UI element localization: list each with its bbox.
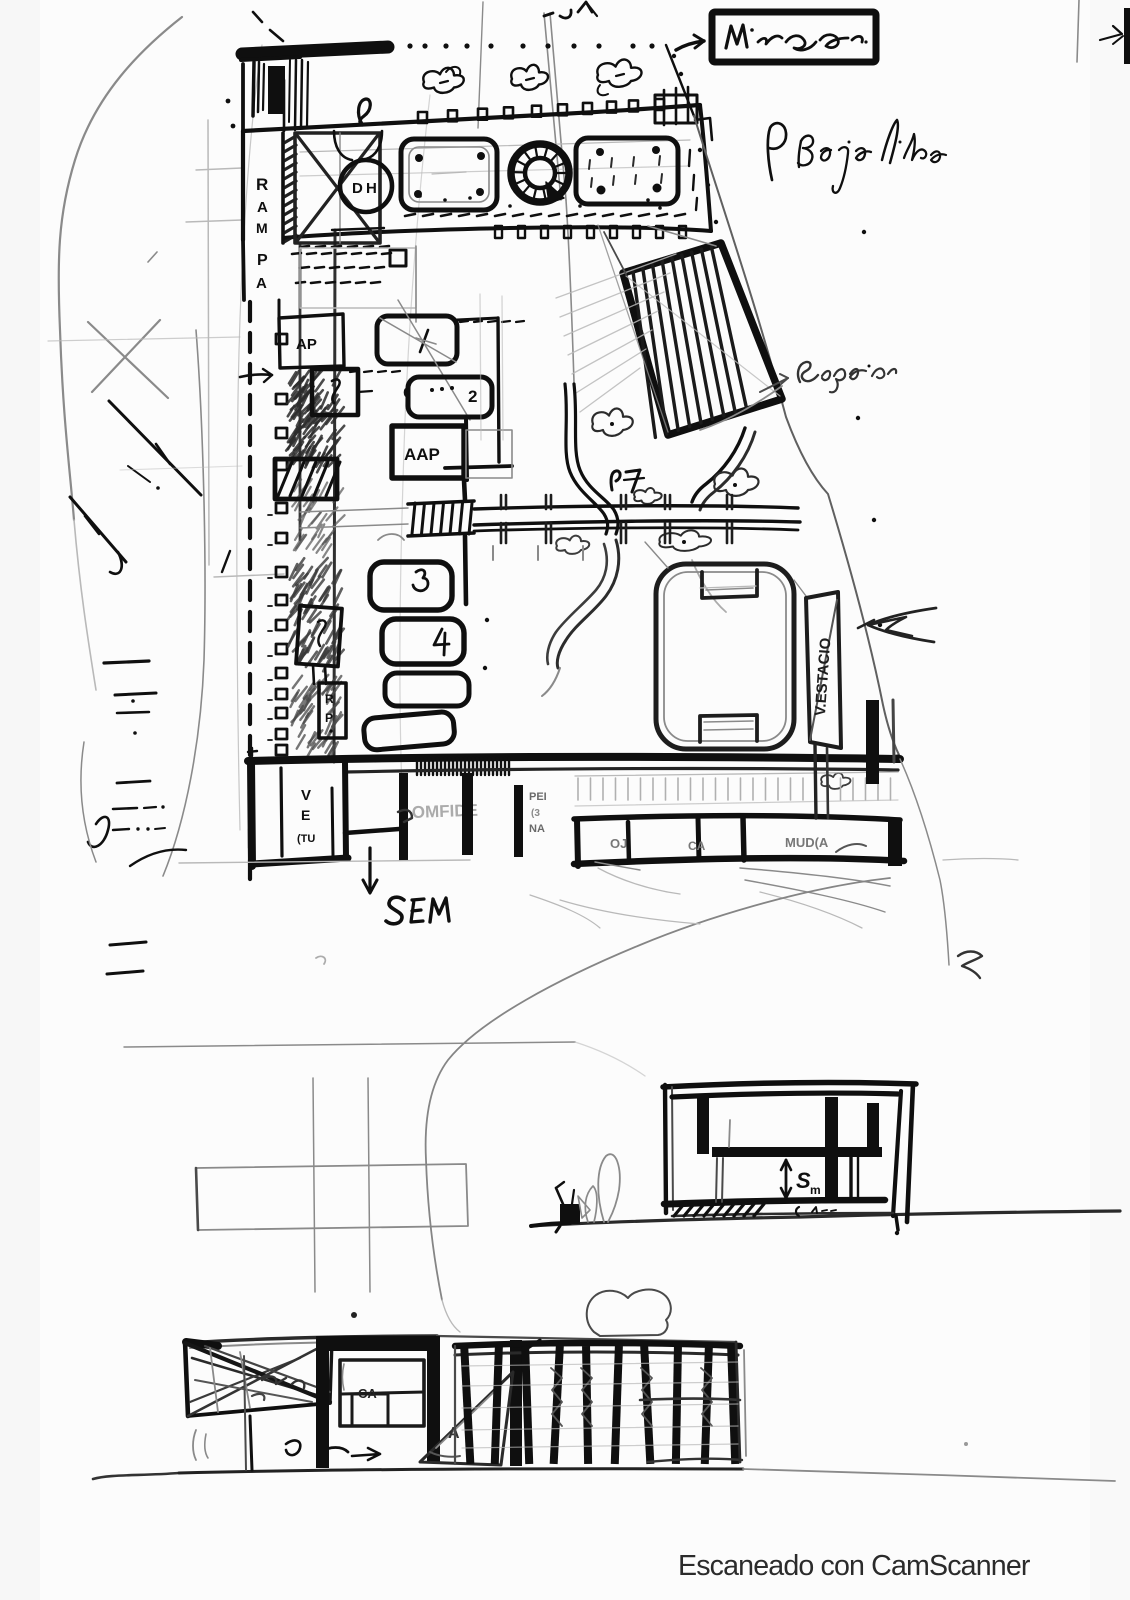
svg-text:(3: (3	[531, 808, 540, 819]
svg-text:D: D	[352, 180, 363, 197]
svg-text:P: P	[257, 252, 268, 269]
svg-text:CA: CA	[358, 1386, 377, 1401]
svg-text:CA: CA	[688, 839, 706, 853]
svg-text:PEI: PEI	[529, 791, 547, 803]
svg-text:(TU: (TU	[297, 833, 315, 845]
svg-text:M: M	[256, 220, 268, 236]
svg-text:2: 2	[468, 387, 477, 406]
svg-text:V: V	[301, 787, 311, 804]
svg-text:A: A	[257, 199, 268, 216]
svg-text:P: P	[325, 711, 333, 725]
svg-text:AAP: AAP	[404, 445, 440, 464]
svg-text:m: m	[810, 1183, 821, 1197]
svg-text:S: S	[796, 1168, 811, 1193]
svg-text:AP: AP	[296, 336, 317, 353]
svg-text:NA: NA	[529, 823, 545, 835]
svg-text:Escaneado con CamScanner: Escaneado con CamScanner	[678, 1550, 1031, 1582]
svg-text:A: A	[256, 275, 267, 292]
svg-text:R: R	[256, 175, 268, 194]
svg-text:R: R	[325, 692, 334, 706]
svg-text:H: H	[366, 180, 377, 197]
svg-text:E: E	[301, 807, 310, 823]
svg-text:OJ: OJ	[610, 836, 627, 851]
svg-text:MUD(A: MUD(A	[785, 835, 829, 850]
